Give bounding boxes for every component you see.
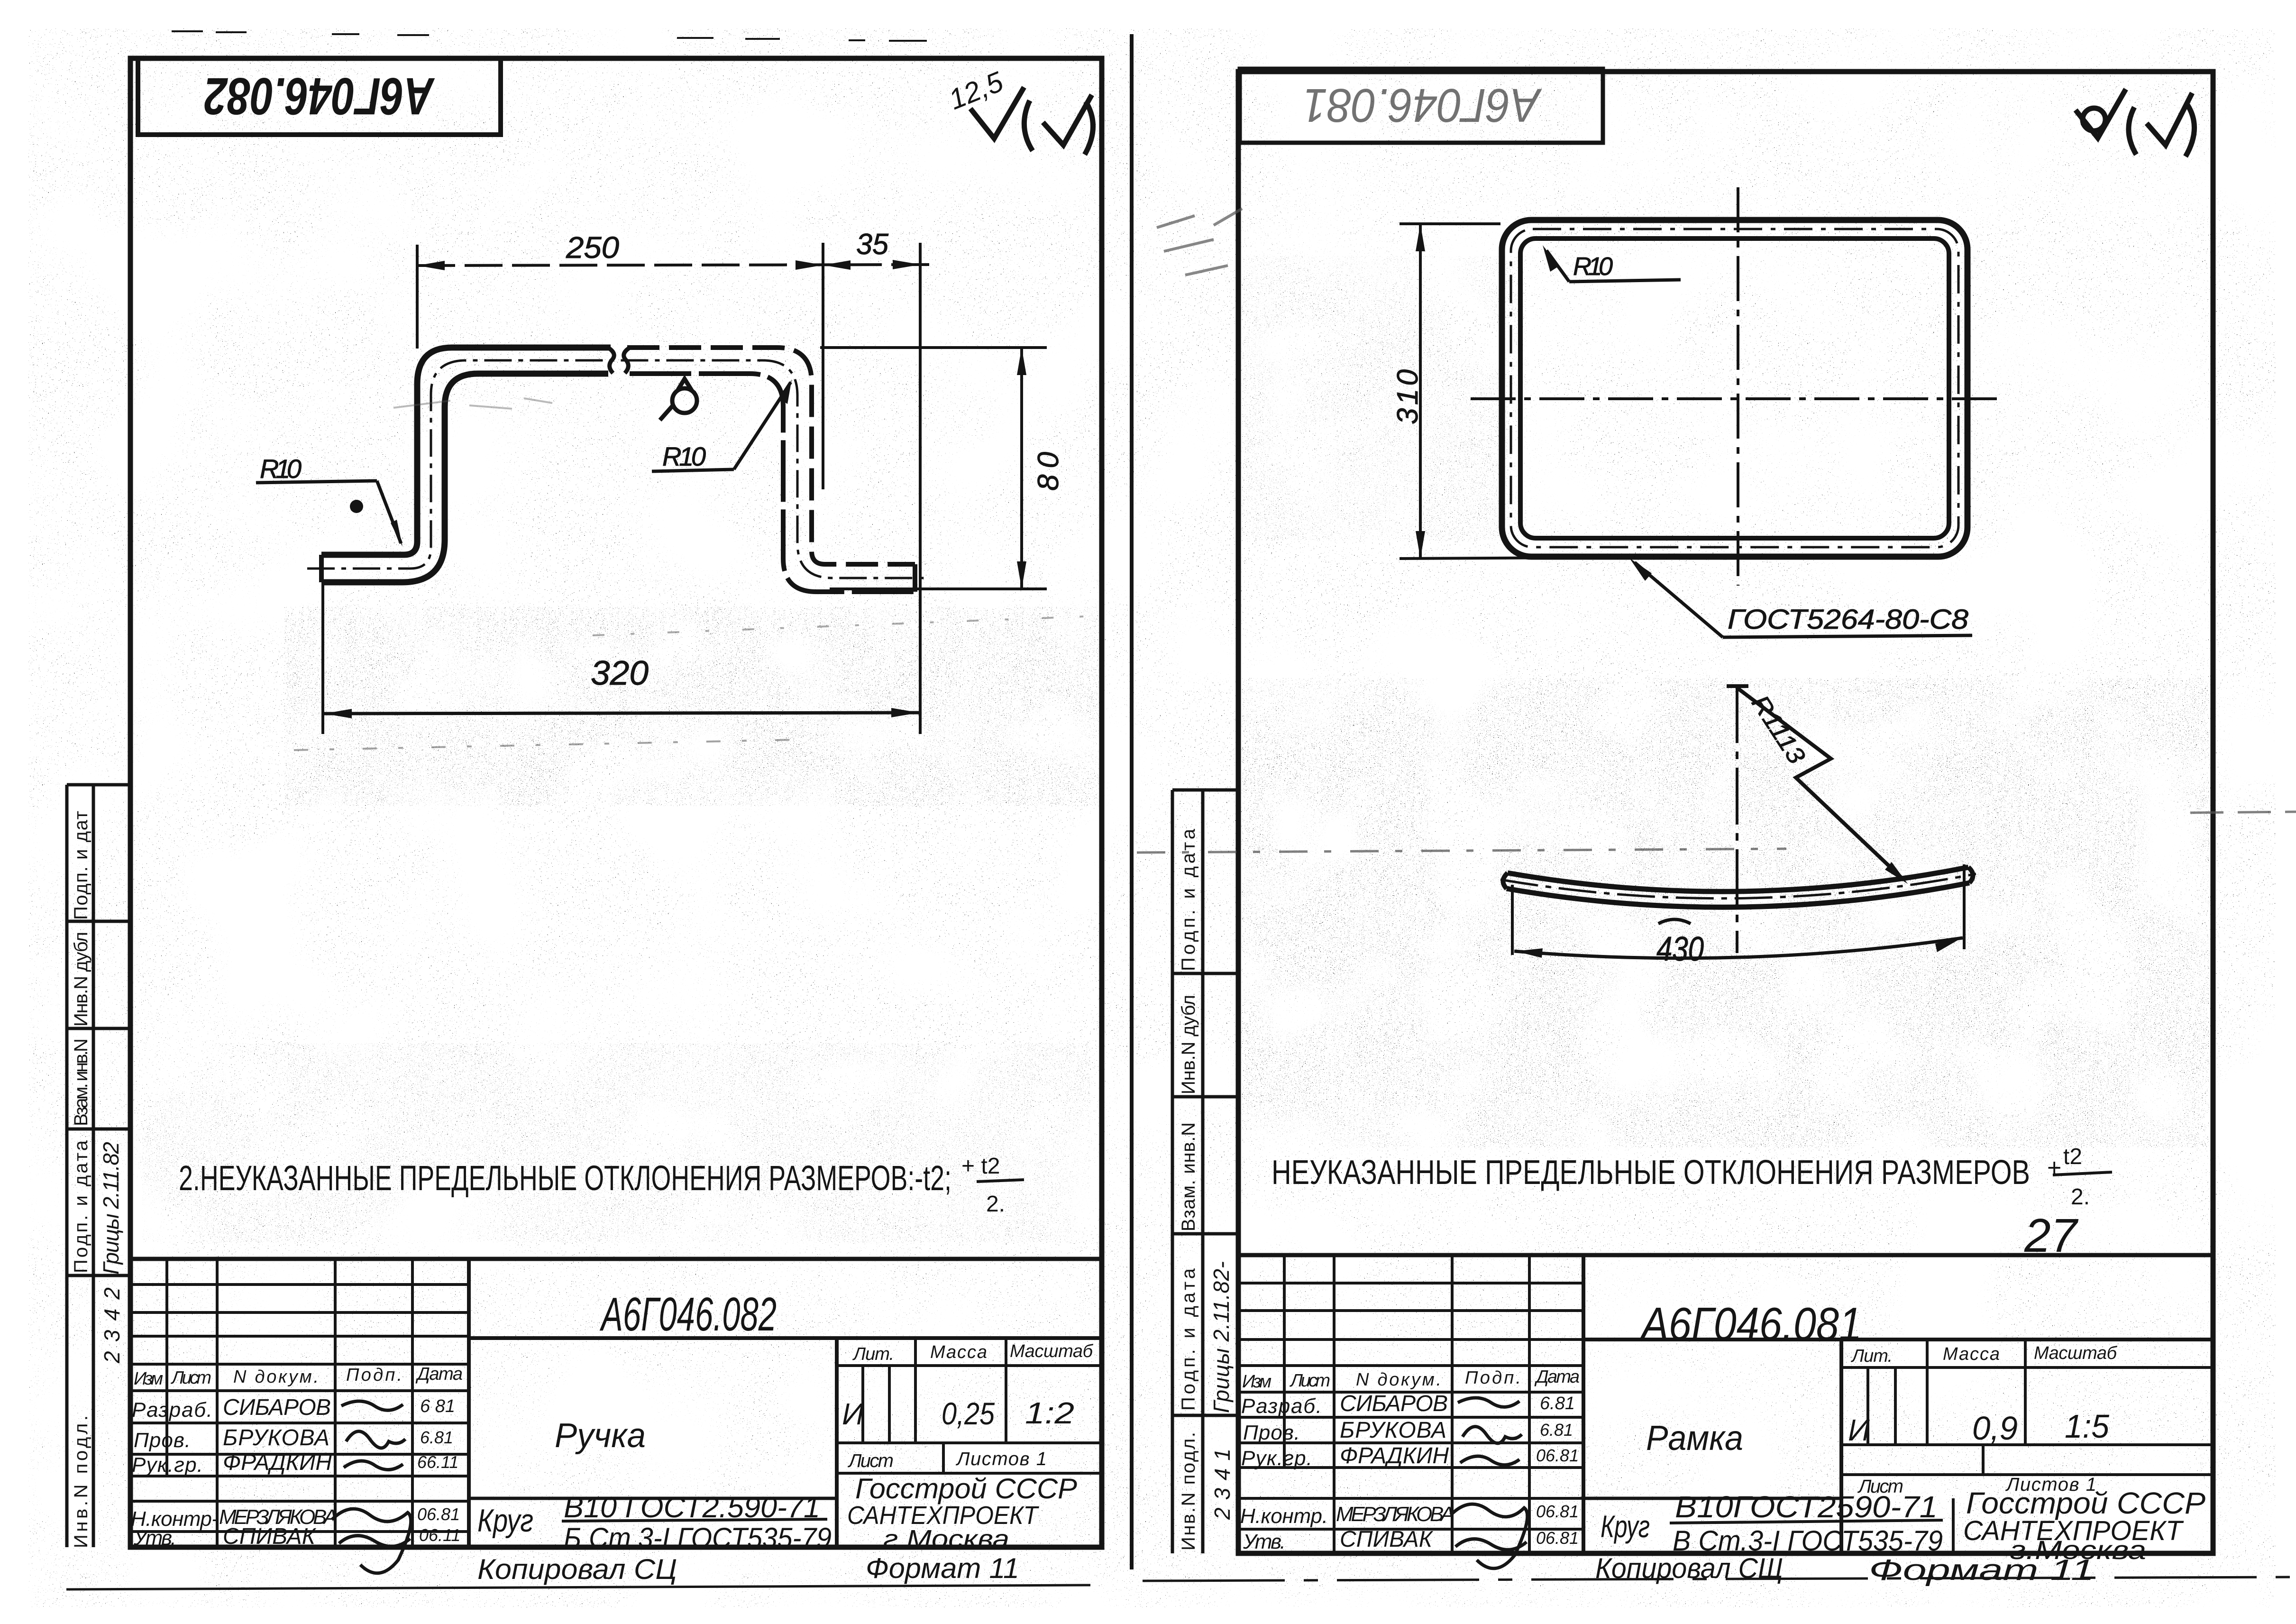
svg-text:Подп. и дат: Подп. и дат — [71, 811, 91, 920]
svg-text:И: И — [1848, 1413, 1870, 1447]
svg-text:Круг: Круг — [477, 1503, 533, 1539]
svg-text:06.81: 06.81 — [1536, 1528, 1579, 1548]
svg-text:Листов 1: Листов 1 — [955, 1449, 1047, 1469]
svg-text:06.81: 06.81 — [417, 1505, 460, 1524]
svg-text:БРУКОВА: БРУКОВА — [1340, 1418, 1446, 1443]
svg-text:Взам. инв.N: Взам. инв.N — [1178, 1122, 1199, 1231]
svg-text:А6Г046.081: А6Г046.081 — [1303, 79, 1542, 132]
svg-text:1:2: 1:2 — [1025, 1396, 1074, 1430]
svg-text:СИБАРОВ: СИБАРОВ — [223, 1395, 331, 1420]
svg-text:430: 430 — [1656, 930, 1704, 968]
svg-text:ГОСТ5264-80-С8: ГОСТ5264-80-С8 — [1728, 604, 1968, 635]
svg-text:Рук.гр.: Рук.гр. — [132, 1453, 203, 1477]
svg-text:0,25: 0,25 — [942, 1396, 995, 1431]
svg-text:0,9: 0,9 — [1972, 1410, 2018, 1447]
svg-text:Утв.: Утв. — [1243, 1530, 1286, 1553]
svg-text:Лит.: Лит. — [852, 1344, 894, 1364]
svg-text:+ t2: + t2 — [961, 1154, 1000, 1179]
svg-text:г.Москва: г.Москва — [883, 1525, 1009, 1553]
svg-text:А6Г046.082: А6Г046.082 — [600, 1288, 777, 1341]
svg-text:6.81: 6.81 — [1540, 1394, 1575, 1413]
svg-text:t2: t2 — [2063, 1144, 2082, 1169]
svg-text:06.81: 06.81 — [1536, 1502, 1579, 1521]
svg-text:СИБАРОВ: СИБАРОВ — [1340, 1391, 1448, 1416]
svg-text:БРУКОВА: БРУКОВА — [223, 1425, 329, 1450]
svg-text:А6Г046.082: А6Г046.082 — [204, 67, 435, 125]
svg-text:06.81: 06.81 — [1536, 1446, 1579, 1465]
svg-text:Масштаб: Масштаб — [2034, 1343, 2118, 1363]
svg-text:Ручка: Ручка — [555, 1417, 646, 1455]
svg-text:Инв.N дубл: Инв.N дубл — [1178, 995, 1199, 1094]
svg-text:МЕРЗЛЯКОВА: МЕРЗЛЯКОВА — [1336, 1503, 1454, 1526]
svg-text:N докум.: N докум. — [1356, 1370, 1441, 1390]
svg-text:66.11: 66.11 — [417, 1452, 458, 1472]
svg-text:Изм: Изм — [1242, 1372, 1271, 1392]
svg-text:Круг: Круг — [1601, 1509, 1650, 1544]
svg-text:Госстрой СССР: Госстрой СССР — [855, 1473, 1077, 1505]
svg-text:35: 35 — [856, 228, 889, 261]
svg-text:В Ст.3-I ГОСТ535-79: В Ст.3-I ГОСТ535-79 — [1673, 1525, 1943, 1557]
svg-text:1:5: 1:5 — [2065, 1408, 2110, 1445]
svg-text:ФРАДКИН: ФРАДКИН — [1340, 1443, 1449, 1468]
svg-text:6.81: 6.81 — [1540, 1420, 1573, 1440]
svg-text:Подп.: Подп. — [1465, 1368, 1521, 1388]
svg-text:НЕУКАЗАННЫЕ ПРЕДЕЛЬНЫЕ ОТКЛО: НЕУКАЗАННЫЕ ПРЕДЕЛЬНЫЕ ОТКЛОНЕНИЯ РАЗМЕР… — [1271, 1154, 2030, 1192]
svg-text:Масса: Масса — [1943, 1344, 2000, 1364]
svg-text:Лист: Лист — [1289, 1371, 1330, 1391]
svg-text:Масса: Масса — [930, 1342, 987, 1362]
svg-text:Н.контр.: Н.контр. — [1240, 1505, 1328, 1528]
svg-text:И: И — [842, 1397, 864, 1431]
svg-text:Рук.гр.: Рук.гр. — [1241, 1447, 1312, 1470]
svg-text:СПИВАК: СПИВАК — [1340, 1527, 1434, 1552]
svg-text:Формат 11: Формат 11 — [866, 1552, 1019, 1584]
svg-text:Разраб.: Разраб. — [1241, 1395, 1322, 1418]
svg-text:N докум.: N докум. — [233, 1367, 319, 1387]
svg-text:Масштаб: Масштаб — [1010, 1341, 1094, 1361]
svg-text:ФРАДКИН: ФРАДКИН — [223, 1450, 332, 1475]
svg-text:R10: R10 — [260, 454, 302, 484]
svg-text:Инв.N дубл: Инв.N дубл — [71, 932, 91, 1027]
svg-text:R10: R10 — [1573, 252, 1613, 281]
svg-text:Лист: Лист — [170, 1368, 211, 1388]
svg-text:Пров.: Пров. — [1243, 1421, 1300, 1444]
svg-text:2.: 2. — [986, 1192, 1005, 1217]
svg-text:Подп.: Подп. — [346, 1365, 402, 1385]
svg-text:Разраб.: Разраб. — [132, 1398, 212, 1422]
svg-text:Инв.N подл.: Инв.N подл. — [1178, 1432, 1199, 1551]
svg-text:Дата: Дата — [415, 1364, 463, 1384]
svg-text:06.11: 06.11 — [419, 1525, 460, 1545]
svg-text:Утв.: Утв. — [133, 1526, 176, 1550]
svg-text:250: 250 — [566, 230, 619, 265]
svg-text:6.81: 6.81 — [420, 1428, 453, 1447]
svg-text:Рамка: Рамка — [1646, 1418, 1743, 1458]
svg-text:2.: 2. — [2071, 1184, 2090, 1210]
svg-text:310: 310 — [1391, 369, 1424, 424]
svg-text:Взам. инв.N: Взам. инв.N — [71, 1038, 91, 1126]
svg-text:Грицы 2.11.82: Грицы 2.11.82 — [99, 1142, 123, 1275]
svg-text:R10: R10 — [662, 441, 706, 471]
svg-text:А6Г046.081: А6Г046.081 — [1639, 1298, 1862, 1350]
svg-text:Грицы 2.11.82-: Грицы 2.11.82- — [1209, 1261, 1234, 1413]
svg-text:Формат 11: Формат 11 — [1869, 1554, 2095, 1587]
svg-text:СПИВАК: СПИВАК — [223, 1524, 317, 1549]
svg-text:6 81: 6 81 — [420, 1396, 455, 1416]
svg-text:Лит.: Лит. — [1850, 1346, 1893, 1366]
svg-text:Пров.: Пров. — [134, 1429, 191, 1452]
svg-text:Б Ст.3-I ГОСТ535-79: Б Ст.3-I ГОСТ535-79 — [564, 1522, 832, 1554]
svg-text:2.НЕУКАЗАННЫЕ ПРЕДЕЛЬНЫЕ ОТК: 2.НЕУКАЗАННЫЕ ПРЕДЕЛЬНЫЕ ОТКЛОНЕНИЯ РАЗМ… — [179, 1158, 951, 1198]
svg-text:+: + — [2047, 1154, 2061, 1182]
svg-text:В10ГОСТ2590-71: В10ГОСТ2590-71 — [1675, 1490, 1938, 1524]
svg-text:Изм: Изм — [134, 1369, 163, 1389]
svg-text:320: 320 — [591, 654, 649, 692]
svg-text:Лист: Лист — [847, 1450, 894, 1471]
svg-text:Дата: Дата — [1534, 1367, 1580, 1387]
svg-text:Копировал СЦ: Копировал СЦ — [477, 1553, 677, 1585]
